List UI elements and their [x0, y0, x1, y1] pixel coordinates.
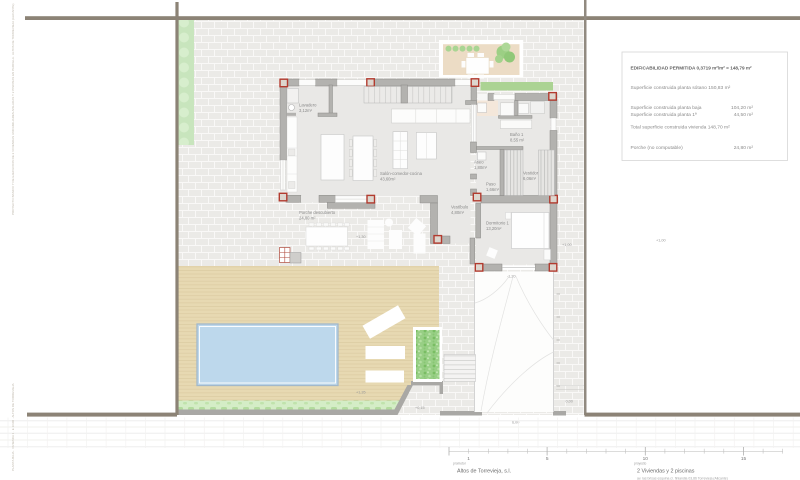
svg-text:Porche descubierto: Porche descubierto	[299, 210, 336, 215]
svg-text:promotor: promotor	[453, 462, 467, 466]
svg-text:44,50 m²: 44,50 m²	[734, 112, 754, 118]
svg-text:+1,00: +1,00	[562, 243, 572, 247]
svg-text:Porche (no computable): Porche (no computable)	[631, 145, 684, 151]
svg-text:8,55 m²: 8,55 m²	[510, 138, 525, 143]
svg-text:Baño 1: Baño 1	[510, 132, 524, 137]
svg-text:0,00: 0,00	[566, 400, 573, 404]
svg-text:PLANTA BAJA . VIVIENDA 1 . E 1: PLANTA BAJA . VIVIENDA 1 . E 1/100 . ALT…	[11, 383, 15, 471]
svg-text:15: 15	[741, 456, 747, 462]
svg-text:Aseo: Aseo	[474, 160, 484, 165]
svg-text:13,20m²: 13,20m²	[486, 226, 502, 231]
svg-text:+1,30: +1,30	[356, 235, 366, 239]
svg-text:1,80m²: 1,80m²	[474, 165, 488, 170]
svg-text:Vestíbulo: Vestíbulo	[451, 205, 469, 210]
svg-text:1: 1	[467, 456, 470, 462]
svg-text:43,60m²: 43,60m²	[380, 177, 396, 182]
svg-text:Vestidor: Vestidor	[523, 171, 539, 176]
svg-text:Dormitorio 1: Dormitorio 1	[486, 221, 509, 226]
svg-text:Lavadero: Lavadero	[299, 103, 317, 108]
svg-text:Salón-comedor-cocina: Salón-comedor-cocina	[380, 171, 423, 176]
svg-text:24,80 m²: 24,80 m²	[734, 145, 754, 151]
svg-text:2 Viviendas y 2 piscinas: 2 Viviendas y 2 piscinas	[637, 468, 695, 474]
svg-text:-1,20: -1,20	[507, 275, 516, 279]
svg-text:proyecto: proyecto	[634, 462, 646, 466]
svg-text:Paso: Paso	[486, 182, 496, 187]
svg-text:4,80m²: 4,80m²	[451, 210, 465, 215]
svg-text:Total superficie construida vi: Total superficie construida vivienda 148…	[631, 125, 731, 131]
svg-text:Superficie construida planta s: Superficie construida planta sótano 150,…	[631, 85, 731, 91]
svg-text:24,80 m²: 24,80 m²	[299, 216, 316, 221]
svg-text:1,66m²: 1,66m²	[486, 187, 500, 192]
svg-text:Superficie construida planta 1: Superficie construida planta 1ª	[631, 112, 697, 118]
svg-text:6,06m²: 6,06m²	[523, 176, 537, 181]
svg-text:104,20 m²: 104,20 m²	[731, 105, 753, 111]
svg-text:Superficie construida planta b: Superficie construida planta baja	[631, 105, 702, 111]
svg-text:+1,35: +1,35	[356, 391, 366, 395]
svg-text:3,12m²: 3,12m²	[299, 108, 313, 113]
svg-text:+0,15: +0,15	[415, 406, 425, 410]
svg-text:av. las brisas esquina c/. fin: av. las brisas esquina c/. finlandia 03,…	[637, 477, 728, 480]
svg-text:+1,00: +1,00	[656, 239, 666, 243]
svg-text:PROYECTO BASICO Y DE EJECUCION: PROYECTO BASICO Y DE EJECUCION DE 2 VIVI…	[11, 3, 15, 215]
svg-text:5: 5	[546, 456, 549, 462]
svg-text:Altos de Torrevieja, s.l.: Altos de Torrevieja, s.l.	[457, 468, 511, 474]
svg-text:EDIFICABILIDAD PERMITIDA 0,371: EDIFICABILIDAD PERMITIDA 0,3719 m²/m² = …	[631, 66, 753, 71]
